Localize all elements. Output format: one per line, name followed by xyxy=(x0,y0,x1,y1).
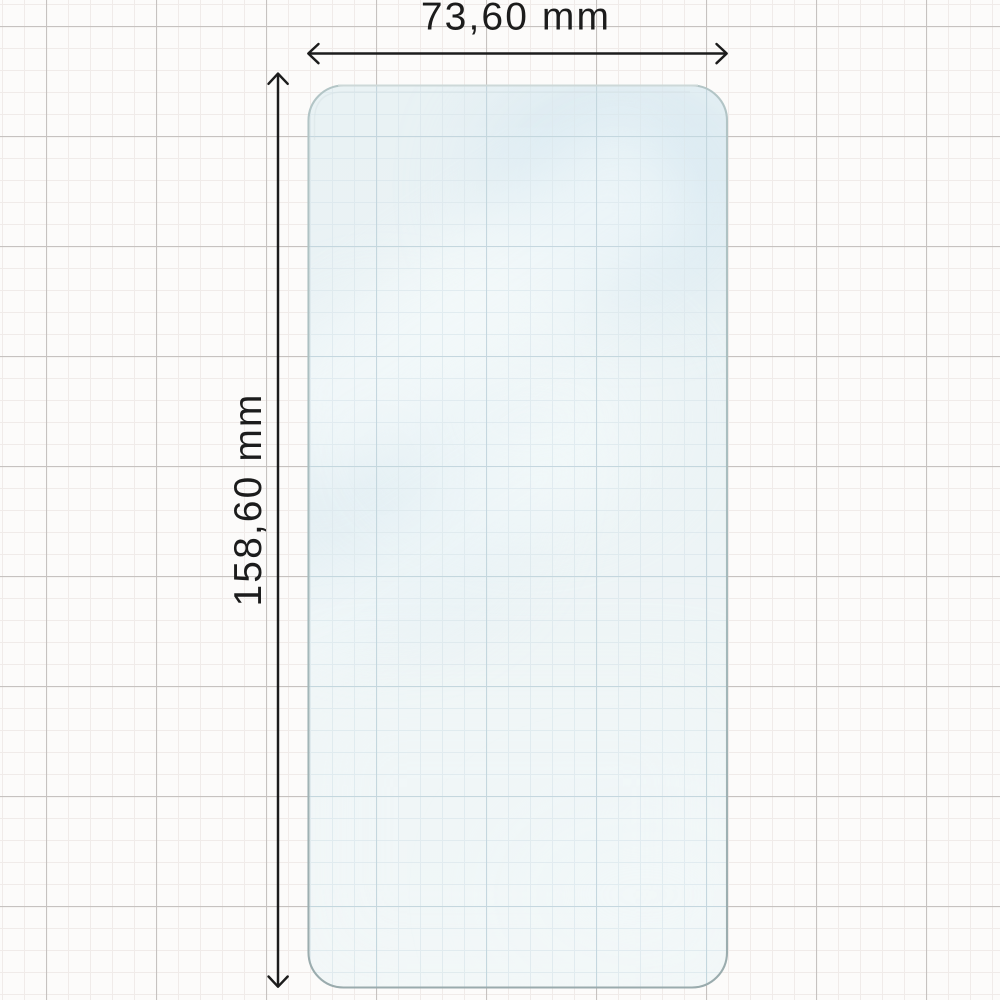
svg-text:158,60 mm: 158,60 mm xyxy=(227,393,270,607)
svg-text:73,60 mm: 73,60 mm xyxy=(421,0,611,39)
